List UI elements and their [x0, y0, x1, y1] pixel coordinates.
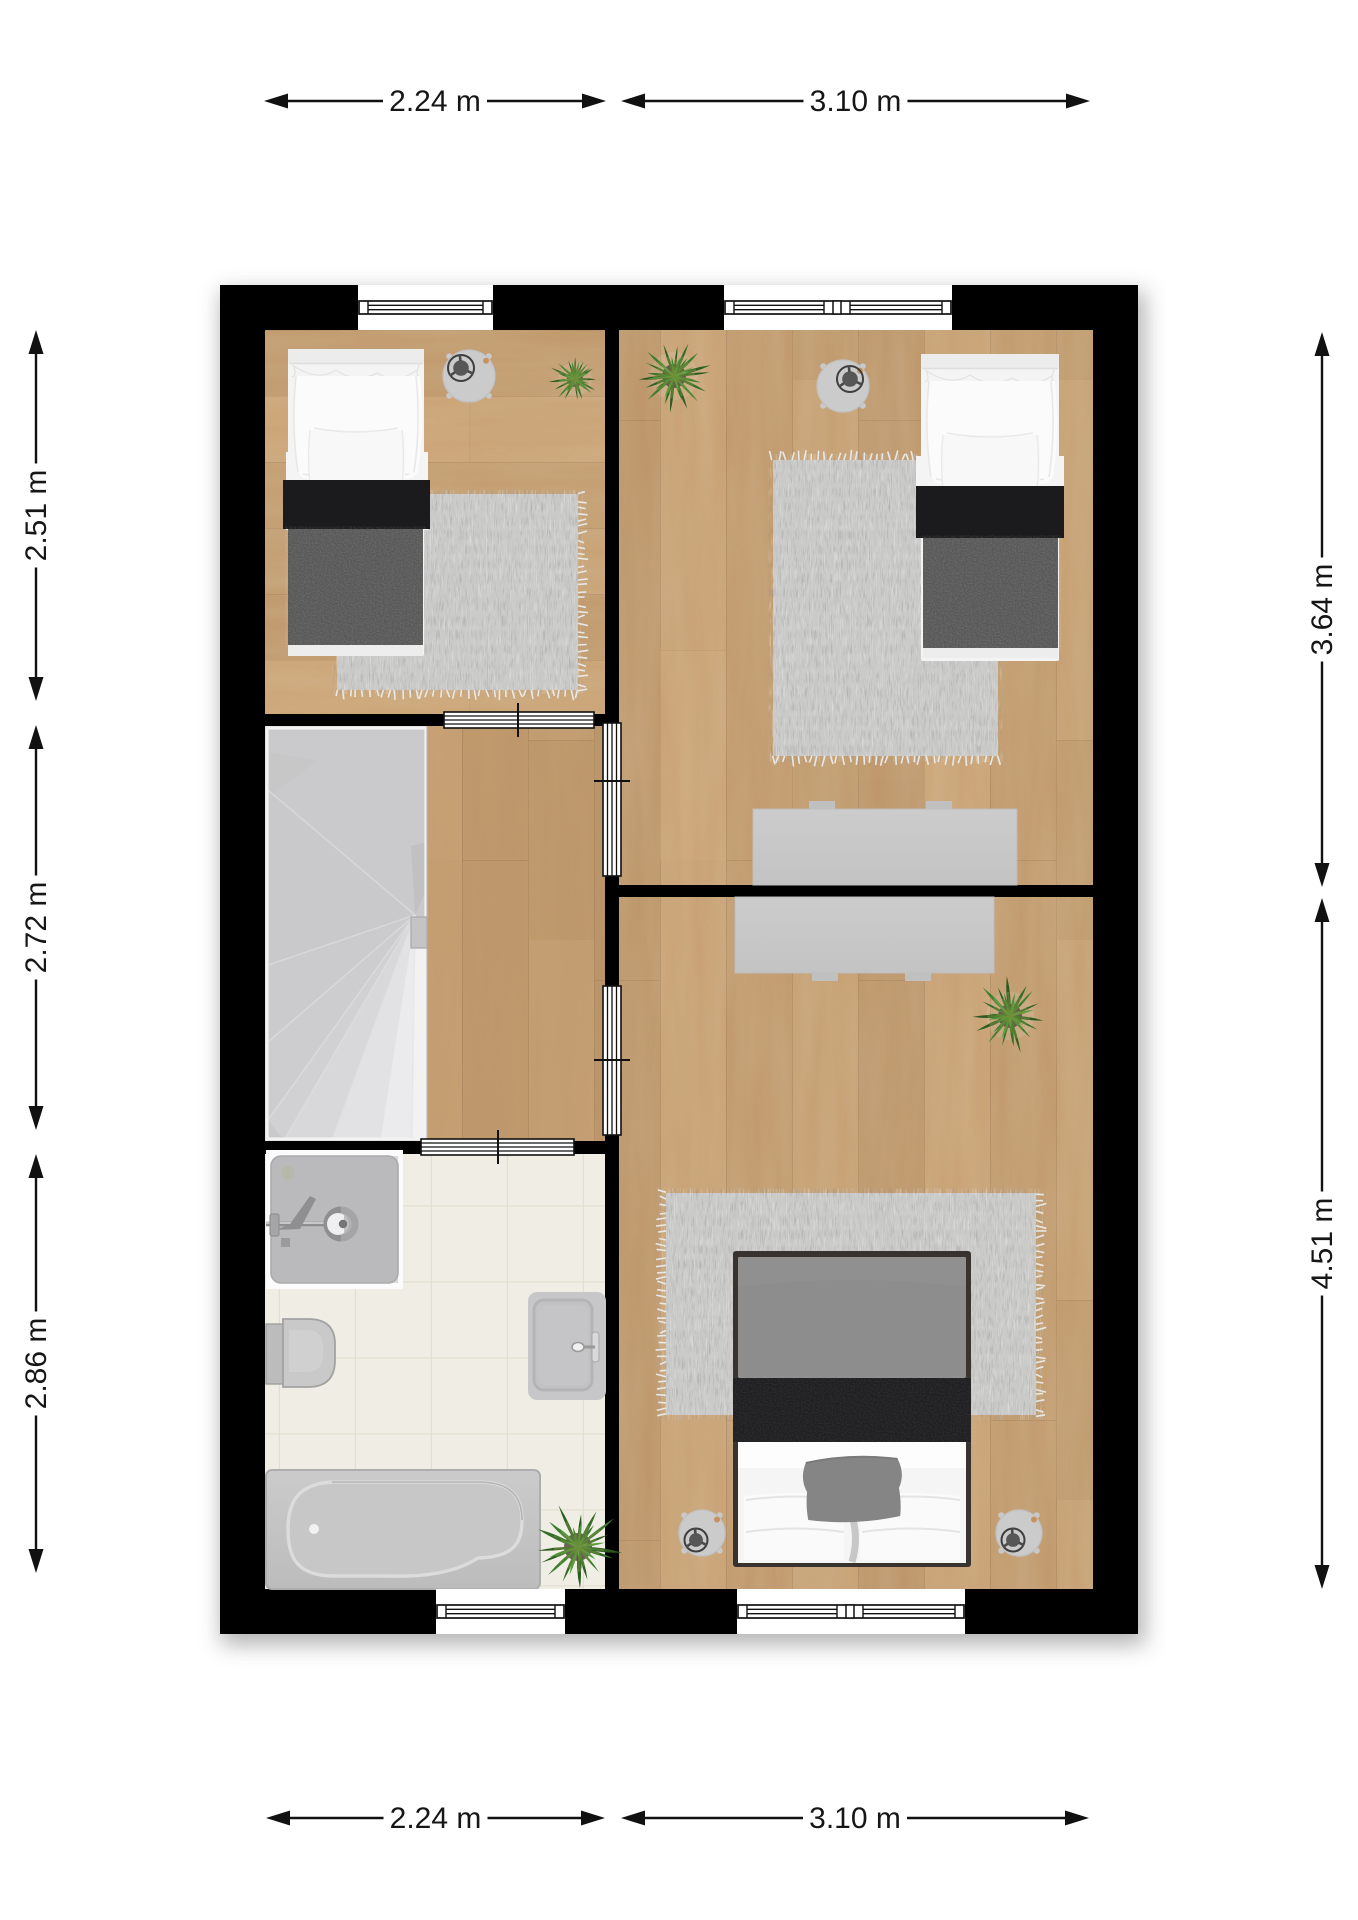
svg-text:3.10 m: 3.10 m [810, 85, 902, 118]
svg-text:3.10 m: 3.10 m [809, 1802, 901, 1835]
svg-text:2.24 m: 2.24 m [390, 1802, 482, 1835]
svg-text:3.64 m: 3.64 m [1306, 564, 1339, 656]
svg-text:2.24 m: 2.24 m [389, 85, 481, 118]
svg-text:2.72 m: 2.72 m [20, 882, 53, 974]
svg-text:2.51 m: 2.51 m [20, 470, 53, 562]
svg-text:4.51 m: 4.51 m [1306, 1198, 1339, 1290]
svg-text:2.86 m: 2.86 m [20, 1318, 53, 1410]
